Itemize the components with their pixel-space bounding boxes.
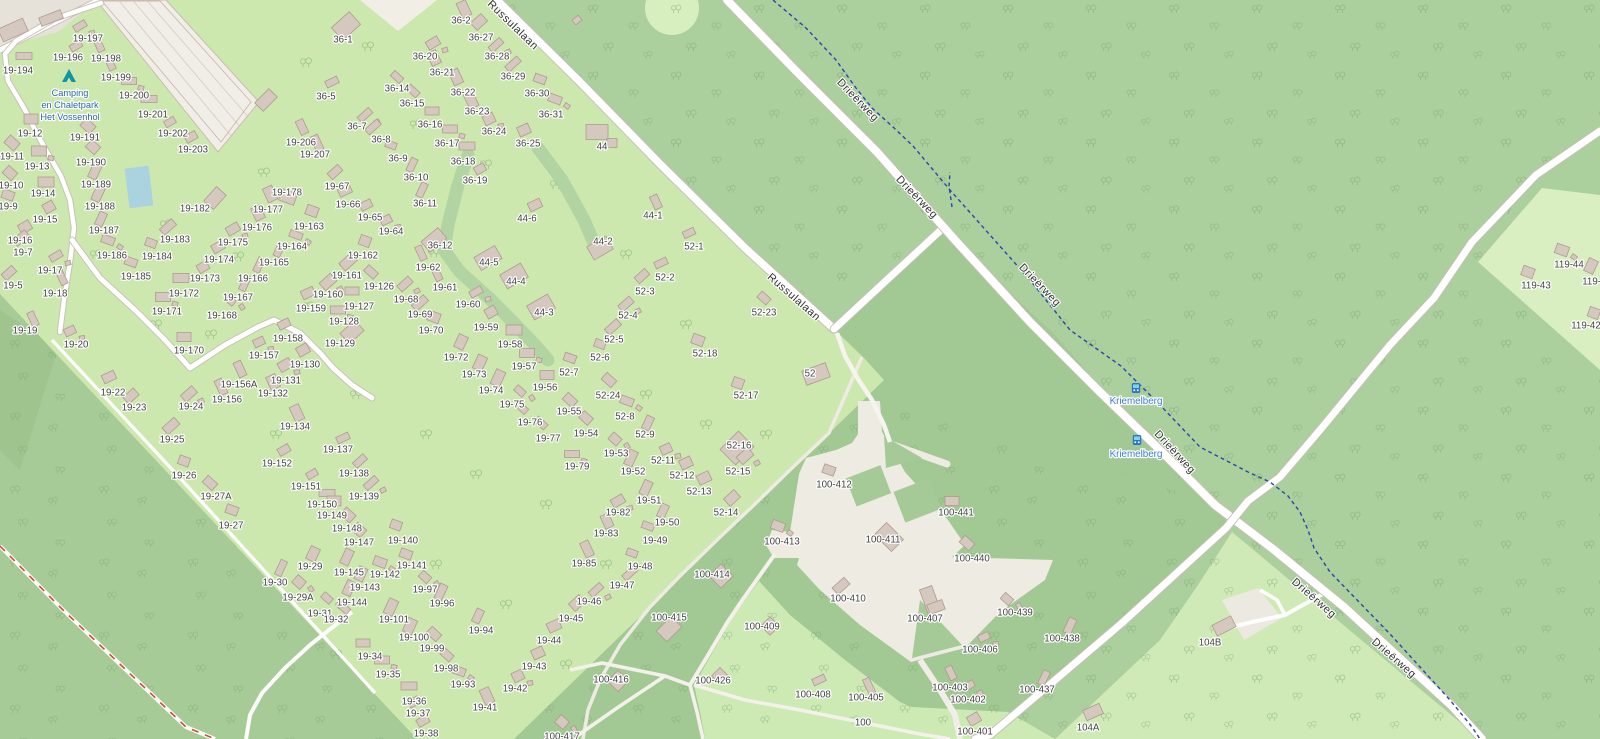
svg-text:100: 100 bbox=[855, 718, 872, 729]
svg-text:19-190: 19-190 bbox=[76, 158, 107, 169]
svg-text:36-1: 36-1 bbox=[333, 35, 352, 46]
svg-text:44-4: 44-4 bbox=[506, 277, 526, 288]
svg-text:19-138: 19-138 bbox=[339, 469, 369, 480]
svg-text:36-22: 36-22 bbox=[451, 88, 476, 99]
svg-text:19-157: 19-157 bbox=[249, 351, 279, 362]
svg-text:36-9: 36-9 bbox=[388, 154, 407, 165]
svg-text:19-20: 19-20 bbox=[64, 340, 89, 351]
svg-text:19-11: 19-11 bbox=[0, 152, 24, 163]
svg-text:100-440: 100-440 bbox=[954, 554, 990, 565]
svg-text:52-16: 52-16 bbox=[727, 441, 752, 452]
svg-text:19-51: 19-51 bbox=[637, 496, 662, 507]
svg-text:52-11: 52-11 bbox=[651, 456, 675, 467]
svg-text:19-143: 19-143 bbox=[350, 583, 380, 594]
svg-text:19-22: 19-22 bbox=[101, 388, 126, 399]
svg-text:19-14: 19-14 bbox=[31, 189, 56, 200]
svg-text:36-11: 36-11 bbox=[413, 199, 437, 210]
svg-text:Kriemelberg: Kriemelberg bbox=[1110, 396, 1163, 407]
svg-text:44-5: 44-5 bbox=[479, 258, 498, 269]
svg-text:36-28: 36-28 bbox=[485, 52, 510, 63]
svg-text:19-17: 19-17 bbox=[38, 266, 63, 277]
svg-text:36-23: 36-23 bbox=[465, 107, 490, 118]
svg-text:19-130: 19-130 bbox=[290, 360, 321, 371]
svg-text:52-2: 52-2 bbox=[655, 273, 674, 284]
svg-text:19-55: 19-55 bbox=[557, 407, 582, 418]
svg-text:19-144: 19-144 bbox=[337, 598, 368, 609]
svg-text:19-185: 19-185 bbox=[121, 272, 151, 283]
svg-text:19-188: 19-188 bbox=[85, 202, 115, 213]
svg-text:100-438: 100-438 bbox=[1044, 634, 1080, 645]
svg-text:19-182: 19-182 bbox=[180, 204, 210, 215]
svg-text:19-93: 19-93 bbox=[451, 680, 476, 691]
svg-text:100-410: 100-410 bbox=[830, 594, 866, 605]
svg-text:19-47: 19-47 bbox=[610, 581, 635, 592]
svg-text:19-176: 19-176 bbox=[242, 223, 272, 234]
svg-text:36-14: 36-14 bbox=[385, 84, 410, 95]
svg-text:19-68: 19-68 bbox=[394, 295, 419, 306]
svg-text:19-75: 19-75 bbox=[500, 400, 525, 411]
svg-text:19-61: 19-61 bbox=[433, 283, 458, 294]
svg-text:52-18: 52-18 bbox=[693, 349, 718, 360]
svg-text:36-10: 36-10 bbox=[404, 173, 429, 184]
svg-text:19-175: 19-175 bbox=[218, 238, 248, 249]
svg-text:100-414: 100-414 bbox=[694, 570, 730, 581]
svg-text:52: 52 bbox=[805, 369, 816, 380]
svg-text:19-18: 19-18 bbox=[43, 289, 68, 300]
svg-text:19-27: 19-27 bbox=[219, 521, 244, 532]
svg-text:19-66: 19-66 bbox=[336, 200, 361, 211]
svg-text:19-156: 19-156 bbox=[212, 395, 242, 406]
svg-text:19-184: 19-184 bbox=[142, 252, 173, 263]
svg-text:19-12: 19-12 bbox=[18, 129, 43, 140]
svg-text:19-44: 19-44 bbox=[537, 636, 562, 647]
svg-text:19-48: 19-48 bbox=[628, 562, 653, 573]
svg-text:36-31: 36-31 bbox=[539, 110, 564, 121]
svg-text:Het Vossenhol: Het Vossenhol bbox=[40, 112, 99, 122]
svg-text:19-147: 19-147 bbox=[344, 538, 374, 549]
svg-text:19-37: 19-37 bbox=[406, 709, 431, 720]
svg-text:44-2: 44-2 bbox=[593, 237, 612, 248]
svg-text:36-8: 36-8 bbox=[371, 135, 390, 146]
svg-text:19-100: 19-100 bbox=[399, 633, 430, 644]
svg-text:19-82: 19-82 bbox=[606, 508, 631, 519]
svg-text:19-129: 19-129 bbox=[325, 339, 355, 350]
svg-text:52-23: 52-23 bbox=[752, 308, 777, 319]
svg-text:19-142: 19-142 bbox=[370, 570, 400, 581]
svg-text:19-96: 19-96 bbox=[430, 599, 455, 610]
svg-text:19-98: 19-98 bbox=[434, 664, 459, 675]
svg-text:19-35: 19-35 bbox=[376, 670, 401, 681]
svg-text:19-196: 19-196 bbox=[53, 53, 83, 64]
svg-text:Camping: Camping bbox=[52, 88, 89, 98]
svg-text:36-2: 36-2 bbox=[451, 16, 470, 27]
svg-text:19-152: 19-152 bbox=[262, 459, 292, 470]
svg-text:19-25: 19-25 bbox=[160, 435, 185, 446]
svg-text:19-43: 19-43 bbox=[522, 662, 547, 673]
svg-text:19-151: 19-151 bbox=[291, 482, 321, 493]
svg-text:19-74: 19-74 bbox=[479, 386, 504, 397]
svg-text:52-6: 52-6 bbox=[590, 353, 609, 364]
svg-text:19-207: 19-207 bbox=[300, 150, 330, 161]
svg-text:19-38: 19-38 bbox=[414, 729, 439, 739]
svg-text:52-8: 52-8 bbox=[615, 412, 634, 423]
svg-text:19-36: 19-36 bbox=[402, 697, 427, 708]
svg-text:36-21: 36-21 bbox=[430, 68, 455, 79]
svg-text:52-12: 52-12 bbox=[670, 471, 695, 482]
svg-text:19-170: 19-170 bbox=[174, 346, 205, 357]
svg-text:100-416: 100-416 bbox=[593, 675, 629, 686]
svg-text:19-150: 19-150 bbox=[307, 500, 338, 511]
svg-text:100-408: 100-408 bbox=[795, 690, 831, 701]
svg-text:36-12: 36-12 bbox=[428, 241, 453, 252]
svg-text:36-29: 36-29 bbox=[501, 72, 526, 83]
svg-text:19-15: 19-15 bbox=[33, 215, 58, 226]
svg-text:19-29: 19-29 bbox=[298, 562, 323, 573]
svg-text:19-159: 19-159 bbox=[296, 304, 326, 315]
svg-text:19-126: 19-126 bbox=[364, 282, 394, 293]
svg-text:100-439: 100-439 bbox=[997, 608, 1033, 619]
svg-text:100-402: 100-402 bbox=[950, 695, 986, 706]
svg-text:19-158: 19-158 bbox=[273, 334, 303, 345]
svg-text:19-69: 19-69 bbox=[408, 310, 433, 321]
svg-text:19-131: 19-131 bbox=[271, 376, 301, 387]
svg-text:19-16: 19-16 bbox=[8, 236, 33, 247]
svg-text:19-54: 19-54 bbox=[574, 429, 599, 440]
svg-text:19-27A: 19-27A bbox=[200, 492, 232, 503]
svg-text:119-42: 119-42 bbox=[1571, 321, 1600, 332]
svg-text:19-128: 19-128 bbox=[329, 317, 359, 328]
svg-text:100-407: 100-407 bbox=[907, 614, 943, 625]
svg-text:19-30: 19-30 bbox=[263, 578, 288, 589]
svg-text:19-161: 19-161 bbox=[332, 271, 362, 282]
svg-text:36-16: 36-16 bbox=[418, 120, 443, 131]
svg-text:19-85: 19-85 bbox=[572, 559, 597, 570]
svg-text:44-3: 44-3 bbox=[534, 308, 553, 319]
svg-text:52-24: 52-24 bbox=[596, 391, 621, 402]
svg-text:19-64: 19-64 bbox=[379, 227, 404, 238]
svg-text:104B: 104B bbox=[1199, 638, 1222, 649]
svg-text:19-186: 19-186 bbox=[97, 251, 127, 262]
svg-text:19-46: 19-46 bbox=[577, 597, 602, 608]
svg-text:19-198: 19-198 bbox=[91, 54, 121, 65]
svg-text:119-43: 119-43 bbox=[1521, 281, 1550, 292]
svg-text:19-148: 19-148 bbox=[332, 524, 362, 535]
svg-text:19-177: 19-177 bbox=[253, 205, 283, 216]
svg-text:19-166: 19-166 bbox=[238, 274, 268, 285]
svg-text:36-17: 36-17 bbox=[435, 139, 460, 150]
svg-text:19-56: 19-56 bbox=[533, 383, 558, 394]
svg-text:19-168: 19-168 bbox=[207, 311, 237, 322]
svg-text:36-18: 36-18 bbox=[451, 157, 476, 168]
svg-text:19-73: 19-73 bbox=[462, 370, 487, 381]
svg-text:52-1: 52-1 bbox=[684, 242, 703, 253]
svg-text:19-187: 19-187 bbox=[89, 226, 119, 237]
svg-text:36-5: 36-5 bbox=[316, 92, 335, 103]
svg-text:52-15: 52-15 bbox=[726, 467, 751, 478]
svg-text:19-49: 19-49 bbox=[643, 536, 668, 547]
svg-text:19-72: 19-72 bbox=[444, 353, 469, 364]
svg-text:19-13: 19-13 bbox=[25, 162, 50, 173]
svg-text:100-409: 100-409 bbox=[744, 622, 780, 633]
svg-text:19-194: 19-194 bbox=[3, 66, 34, 77]
svg-text:19-52: 19-52 bbox=[621, 467, 646, 478]
svg-text:19-149: 19-149 bbox=[317, 511, 347, 522]
svg-text:19-172: 19-172 bbox=[169, 289, 199, 300]
svg-text:19-127: 19-127 bbox=[344, 302, 374, 313]
svg-text:19-167: 19-167 bbox=[223, 293, 253, 304]
svg-text:19-32: 19-32 bbox=[324, 615, 349, 626]
svg-text:52-7: 52-7 bbox=[559, 368, 578, 379]
svg-text:119-44: 119-44 bbox=[1554, 260, 1584, 271]
svg-text:19-45: 19-45 bbox=[559, 614, 584, 625]
svg-text:19-19: 19-19 bbox=[13, 326, 38, 337]
svg-text:19-76: 19-76 bbox=[518, 418, 543, 429]
svg-text:19-164: 19-164 bbox=[277, 242, 308, 253]
svg-text:19-191: 19-191 bbox=[70, 133, 100, 144]
svg-text:36-15: 36-15 bbox=[400, 99, 425, 110]
svg-text:19-60: 19-60 bbox=[456, 300, 481, 311]
svg-text:19-141: 19-141 bbox=[397, 561, 427, 572]
svg-text:100-412: 100-412 bbox=[816, 480, 852, 491]
svg-text:19-200: 19-200 bbox=[119, 91, 150, 102]
svg-text:19-201: 19-201 bbox=[138, 110, 168, 121]
svg-text:en Chaletpark: en Chaletpark bbox=[41, 100, 99, 110]
svg-text:19-99: 19-99 bbox=[420, 644, 445, 655]
svg-text:19-70: 19-70 bbox=[419, 326, 444, 337]
svg-text:100-417: 100-417 bbox=[544, 732, 580, 739]
svg-text:19-165: 19-165 bbox=[259, 258, 289, 269]
svg-text:19-101: 19-101 bbox=[379, 615, 409, 626]
svg-text:100-411: 100-411 bbox=[866, 535, 901, 546]
svg-text:19-23: 19-23 bbox=[122, 403, 147, 414]
svg-text:100-405: 100-405 bbox=[848, 693, 884, 704]
svg-text:19-137: 19-137 bbox=[323, 445, 353, 456]
svg-text:19-7: 19-7 bbox=[13, 248, 32, 259]
svg-text:52-9: 52-9 bbox=[635, 430, 654, 441]
svg-text:19-203: 19-203 bbox=[178, 145, 208, 156]
svg-text:19-199: 19-199 bbox=[101, 73, 131, 84]
svg-text:36-27: 36-27 bbox=[469, 33, 494, 44]
svg-text:19-41: 19-41 bbox=[473, 703, 498, 714]
svg-text:44: 44 bbox=[597, 142, 608, 153]
svg-text:Kriemelberg: Kriemelberg bbox=[1110, 449, 1163, 460]
svg-text:19-163: 19-163 bbox=[294, 222, 324, 233]
svg-text:19-57: 19-57 bbox=[512, 362, 537, 373]
svg-text:19-24: 19-24 bbox=[179, 402, 204, 413]
svg-text:100-403: 100-403 bbox=[932, 683, 968, 694]
svg-text:100-437: 100-437 bbox=[1019, 685, 1055, 696]
svg-text:104A: 104A bbox=[1077, 723, 1100, 734]
svg-text:36-24: 36-24 bbox=[482, 127, 507, 138]
svg-text:19-140: 19-140 bbox=[388, 536, 419, 547]
svg-text:19-79: 19-79 bbox=[565, 462, 590, 473]
svg-text:19-97: 19-97 bbox=[413, 585, 438, 596]
svg-text:19-162: 19-162 bbox=[348, 251, 378, 262]
svg-text:100-441: 100-441 bbox=[938, 508, 974, 519]
svg-text:19-50: 19-50 bbox=[655, 518, 680, 529]
svg-text:36-7: 36-7 bbox=[347, 122, 366, 133]
svg-text:52-4: 52-4 bbox=[618, 311, 638, 322]
svg-text:19-183: 19-183 bbox=[160, 235, 190, 246]
svg-text:100-401: 100-401 bbox=[957, 727, 993, 738]
svg-text:19-5: 19-5 bbox=[3, 281, 22, 292]
svg-text:19-202: 19-202 bbox=[158, 129, 188, 140]
svg-text:36-19: 36-19 bbox=[463, 176, 488, 187]
svg-text:19-94: 19-94 bbox=[469, 626, 494, 637]
svg-text:19-134: 19-134 bbox=[280, 422, 311, 433]
svg-text:19-42: 19-42 bbox=[503, 684, 528, 695]
svg-text:44-6: 44-6 bbox=[517, 214, 536, 225]
svg-text:19-139: 19-139 bbox=[349, 492, 379, 503]
svg-text:52-17: 52-17 bbox=[734, 391, 759, 402]
svg-text:19-173: 19-173 bbox=[190, 274, 220, 285]
svg-text:19-178: 19-178 bbox=[272, 188, 302, 199]
svg-text:52-5: 52-5 bbox=[604, 335, 623, 346]
svg-text:36-20: 36-20 bbox=[413, 52, 438, 63]
svg-text:36-25: 36-25 bbox=[516, 139, 541, 150]
svg-text:36-30: 36-30 bbox=[525, 89, 550, 100]
svg-text:19-26: 19-26 bbox=[172, 471, 197, 482]
svg-text:19-206: 19-206 bbox=[286, 138, 316, 149]
svg-text:119-45: 119-45 bbox=[1582, 277, 1600, 288]
svg-text:52-3: 52-3 bbox=[635, 287, 654, 298]
svg-text:19-10: 19-10 bbox=[0, 181, 24, 192]
svg-text:19-9: 19-9 bbox=[0, 202, 18, 213]
svg-text:19-67: 19-67 bbox=[325, 182, 350, 193]
svg-text:19-59: 19-59 bbox=[474, 323, 499, 334]
svg-text:100-415: 100-415 bbox=[651, 613, 687, 624]
svg-text:19-77: 19-77 bbox=[536, 434, 561, 445]
svg-text:100-413: 100-413 bbox=[764, 537, 800, 548]
svg-text:19-65: 19-65 bbox=[358, 213, 383, 224]
svg-text:19-29A: 19-29A bbox=[282, 593, 314, 604]
svg-text:52-13: 52-13 bbox=[687, 487, 712, 498]
svg-text:19-62: 19-62 bbox=[416, 263, 441, 274]
svg-text:44-1: 44-1 bbox=[643, 211, 662, 222]
svg-text:19-156A: 19-156A bbox=[221, 380, 258, 391]
svg-text:19-145: 19-145 bbox=[334, 568, 364, 579]
svg-text:19-58: 19-58 bbox=[498, 340, 523, 351]
svg-text:19-132: 19-132 bbox=[258, 389, 288, 400]
svg-text:19-53: 19-53 bbox=[604, 449, 629, 460]
svg-text:100-426: 100-426 bbox=[695, 676, 731, 687]
svg-text:100-406: 100-406 bbox=[962, 645, 998, 656]
svg-text:19-34: 19-34 bbox=[358, 652, 383, 663]
svg-text:52-14: 52-14 bbox=[714, 508, 739, 519]
svg-text:19-174: 19-174 bbox=[204, 255, 235, 266]
svg-text:19-171: 19-171 bbox=[152, 307, 182, 318]
svg-text:19-83: 19-83 bbox=[594, 529, 619, 540]
svg-text:19-189: 19-189 bbox=[81, 180, 111, 191]
svg-text:19-160: 19-160 bbox=[313, 290, 344, 301]
svg-text:19-197: 19-197 bbox=[73, 34, 103, 45]
